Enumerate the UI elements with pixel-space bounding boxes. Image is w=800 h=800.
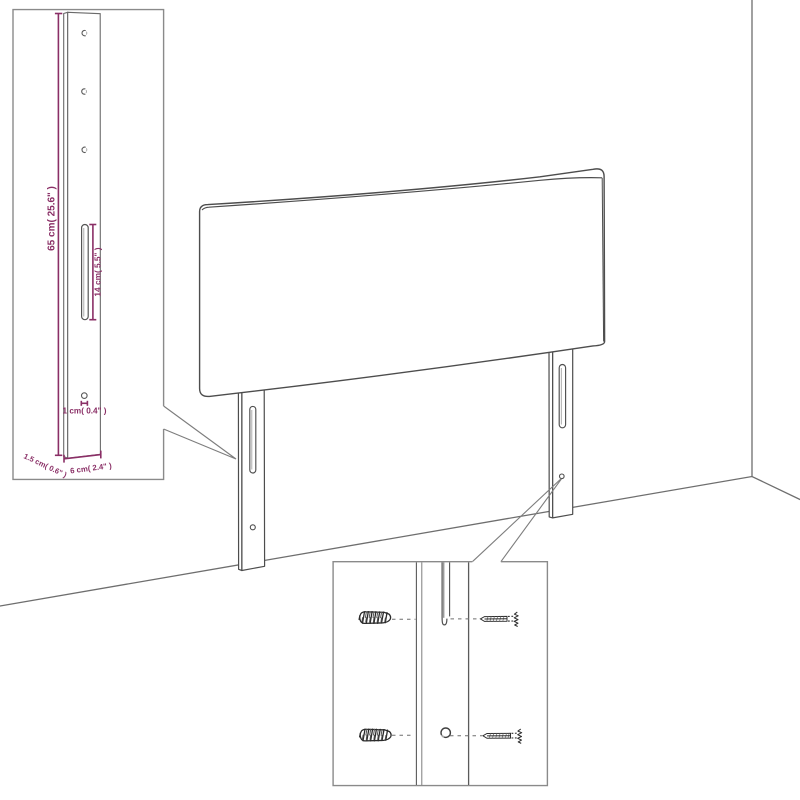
svg-text:1 cm( 0.4" ): 1 cm( 0.4" ) bbox=[63, 407, 107, 416]
svg-text:65 cm( 25.6" ): 65 cm( 25.6" ) bbox=[46, 186, 57, 251]
svg-text:14 cm( 5.5" ): 14 cm( 5.5" ) bbox=[93, 247, 103, 296]
svg-text:6 cm( 2.4" ): 6 cm( 2.4" ) bbox=[70, 461, 113, 475]
